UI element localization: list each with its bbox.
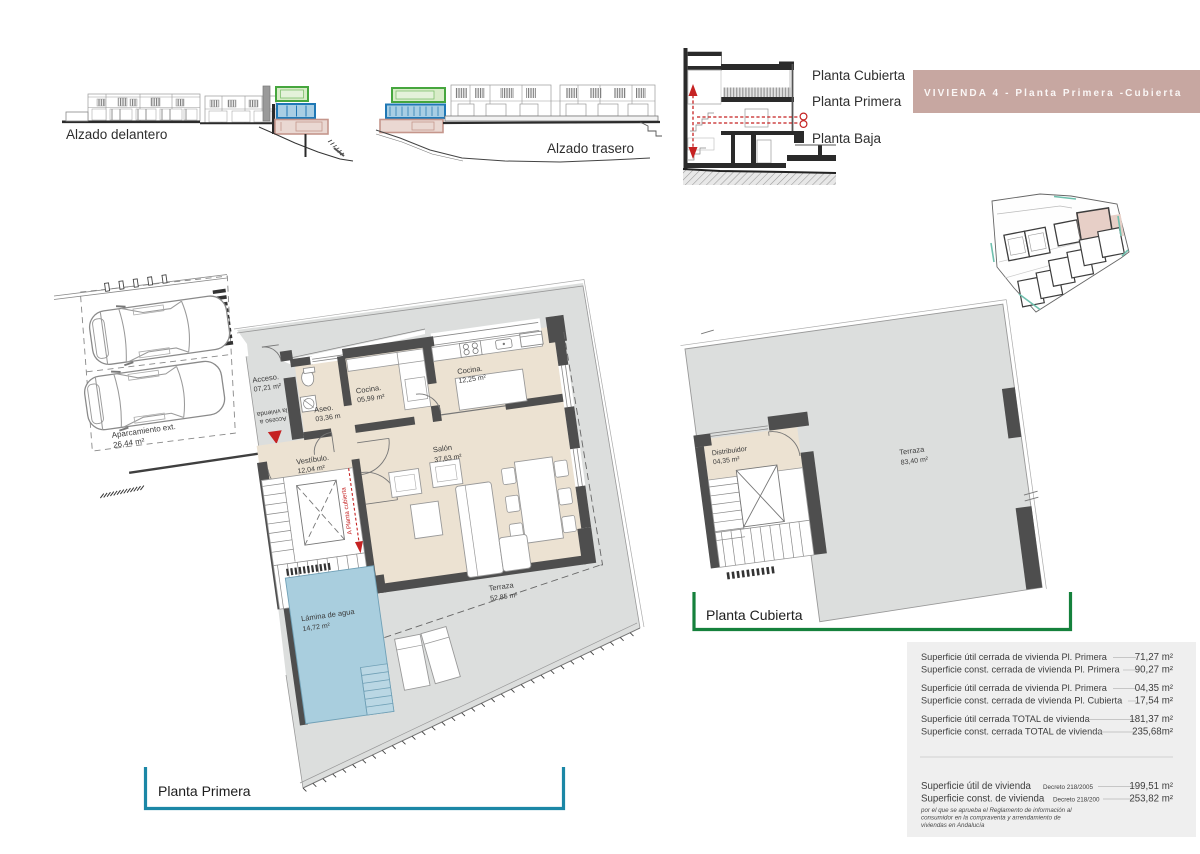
svg-text:Superficie útil cerrada de viv: Superficie útil cerrada de vivienda Pl. …	[921, 683, 1108, 693]
svg-text:Alzado delantero: Alzado delantero	[66, 127, 167, 142]
svg-text:Superficie útil cerrada de viv: Superficie útil cerrada de vivienda Pl. …	[921, 652, 1108, 662]
svg-text:199,51 m²: 199,51 m²	[1129, 781, 1173, 792]
svg-text:Planta Cubierta: Planta Cubierta	[812, 68, 906, 83]
svg-text:viviendas en Andalucía: viviendas en Andalucía	[921, 822, 985, 829]
svg-text:Alzado trasero: Alzado trasero	[547, 141, 634, 156]
svg-text:71,27 m²: 71,27 m²	[1135, 652, 1174, 663]
svg-text:181,37 m²: 181,37 m²	[1129, 714, 1173, 725]
svg-text:por el que se aprueba el Regla: por el que se aprueba el Reglamento de i…	[920, 807, 1072, 814]
svg-text:Superficie útil de vivienda: Superficie útil de vivienda	[921, 781, 1031, 792]
svg-text:253,82 m²: 253,82 m²	[1129, 794, 1173, 805]
svg-text:Decreto 218/2005: Decreto 218/2005	[1043, 784, 1094, 791]
svg-text:90,27 m²: 90,27 m²	[1135, 665, 1174, 676]
svg-text:04,35 m²: 04,35 m²	[1135, 683, 1174, 694]
svg-text:Decreto 218/200: Decreto 218/200	[1053, 797, 1100, 804]
svg-text:Superficie útil cerrada TOTAL: Superficie útil cerrada TOTAL de viviend…	[921, 714, 1091, 724]
svg-text:235,68m²: 235,68m²	[1132, 727, 1174, 738]
svg-text:Superficie const. de vivienda: Superficie const. de vivienda	[921, 794, 1045, 805]
svg-text:Superficie const. cerrada de v: Superficie const. cerrada de vivienda Pl…	[921, 696, 1123, 706]
svg-text:VIVIENDA 4 - Planta Primera -C: VIVIENDA 4 - Planta Primera -Cubierta	[924, 88, 1183, 99]
svg-text:Superficie const. cerrada de v: Superficie const. cerrada de vivienda Pl…	[921, 665, 1121, 675]
svg-text:Planta Baja: Planta Baja	[812, 131, 882, 146]
svg-text:consumidor en la compraventa y: consumidor en la compraventa y arrendami…	[921, 815, 1061, 822]
svg-text:Superficie const. cerrada TOTA: Superficie const. cerrada TOTAL de vivie…	[921, 727, 1103, 737]
svg-text:Planta Primera: Planta Primera	[812, 94, 902, 109]
svg-text:Planta Cubierta: Planta Cubierta	[706, 607, 803, 623]
svg-text:17,54 m²: 17,54 m²	[1135, 696, 1174, 707]
svg-text:Planta Primera: Planta Primera	[158, 783, 251, 799]
